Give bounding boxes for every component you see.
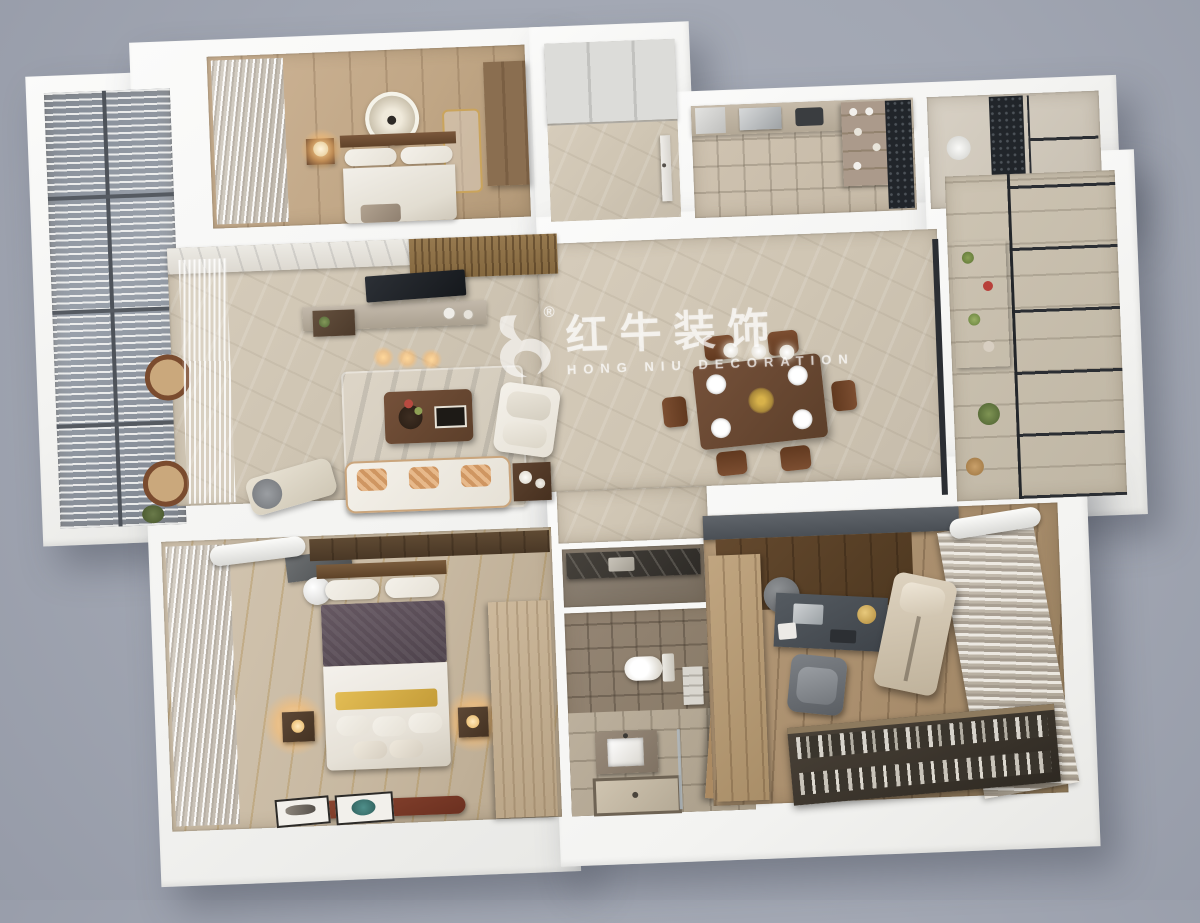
wash-basin <box>607 738 644 767</box>
decor-bowl <box>442 306 455 319</box>
shower-drain <box>632 792 638 798</box>
flower-centerpiece <box>747 386 776 415</box>
bathroom-cart <box>682 666 703 705</box>
plant <box>968 313 980 325</box>
lamp-center <box>387 116 396 125</box>
deco-pillow <box>336 715 371 736</box>
sofa-pillow <box>409 466 440 489</box>
brand-name-chinese: 红牛装饰 <box>565 303 855 360</box>
stone-counter <box>566 548 701 579</box>
dining-chair <box>661 396 688 428</box>
dining-chair <box>779 445 811 472</box>
watermark-texts: 红牛装饰 HONG NIU DECORATION <box>565 303 855 377</box>
throw-blanket <box>360 203 401 223</box>
registered-mark: ® <box>543 304 555 321</box>
room-kitchen <box>691 98 917 218</box>
bull-logo-icon: ® <box>487 308 554 386</box>
refrigerator <box>695 107 726 134</box>
sofa-pillow <box>357 468 388 491</box>
render-canvas: ® 红牛装饰 HONG NIU DECORATION <box>0 0 1200 900</box>
nightstand <box>282 711 315 742</box>
study-wardrobe <box>708 554 769 802</box>
dining-chair <box>716 450 748 477</box>
plate <box>791 408 813 430</box>
art-print <box>351 799 376 817</box>
toilet-bowl <box>624 656 663 681</box>
tea-cup <box>519 471 532 484</box>
dining-chair <box>831 379 858 411</box>
dish <box>872 143 880 151</box>
laptop <box>793 603 824 624</box>
sofa-side-table <box>512 462 551 501</box>
dish <box>865 107 873 115</box>
table-lamp <box>291 720 304 733</box>
chair-seat <box>795 666 838 706</box>
window-side-cabinet <box>312 309 355 337</box>
deco-pillow <box>372 716 407 737</box>
table-lamp <box>466 715 479 728</box>
plant <box>319 316 330 327</box>
bedroom-curtain <box>211 58 289 225</box>
metal-mesh-screen <box>885 100 915 209</box>
pillow <box>344 148 397 167</box>
wardrobe <box>483 61 530 187</box>
master-curtain <box>165 544 240 826</box>
washing-machine <box>946 136 971 161</box>
pillow <box>325 579 380 601</box>
master-bed <box>316 560 455 797</box>
deco-pillow <box>389 739 424 758</box>
toilet <box>624 653 677 683</box>
apartment-model: ® 红牛装饰 HONG NIU DECORATION <box>0 0 1200 923</box>
master-wardrobe <box>488 600 558 818</box>
stove <box>795 107 824 126</box>
room-corridor <box>557 486 709 544</box>
room-utility <box>562 544 706 607</box>
nightstand <box>458 706 489 737</box>
room-right-balcony <box>945 170 1127 501</box>
deco-pillow <box>408 712 443 733</box>
bed-blanket <box>321 600 447 667</box>
dish <box>849 108 857 116</box>
double-bed <box>340 131 459 223</box>
open-book <box>778 622 797 640</box>
balcony-window-wall <box>1007 170 1127 499</box>
pillow <box>385 576 440 598</box>
art-frame <box>335 791 395 825</box>
room-entry-foyer <box>544 39 681 222</box>
art-frame <box>275 795 331 828</box>
pillow <box>400 145 453 164</box>
shower-tray <box>593 775 682 816</box>
watermark: ® 红牛装饰 HONG NIU DECORATION <box>486 288 849 394</box>
sofa <box>344 456 508 510</box>
desk <box>774 593 889 652</box>
dish <box>854 128 862 136</box>
dish <box>853 162 861 170</box>
vanity-counter <box>595 730 659 774</box>
sheer-curtain <box>178 258 235 504</box>
potted-plant <box>977 403 1000 426</box>
plant <box>962 252 974 264</box>
storage-shelf <box>951 240 1010 368</box>
toilet-tank <box>662 653 675 681</box>
counter-sink <box>608 557 635 572</box>
serving-tray <box>434 405 467 428</box>
desk-pad <box>830 629 857 643</box>
tea-cup <box>535 478 545 488</box>
decor-bowl <box>462 309 473 320</box>
coffee-table <box>384 389 474 444</box>
decor-pot <box>966 457 985 476</box>
art-print <box>285 804 316 817</box>
desk-lamp <box>857 605 877 625</box>
plate <box>710 417 732 439</box>
decor-item <box>983 281 993 291</box>
steel-rack <box>739 107 782 131</box>
sofa-pillow <box>460 464 491 487</box>
office-chair <box>786 653 848 716</box>
decor-item <box>983 341 994 352</box>
deco-pillow <box>353 740 388 759</box>
entry-closet <box>544 39 677 124</box>
